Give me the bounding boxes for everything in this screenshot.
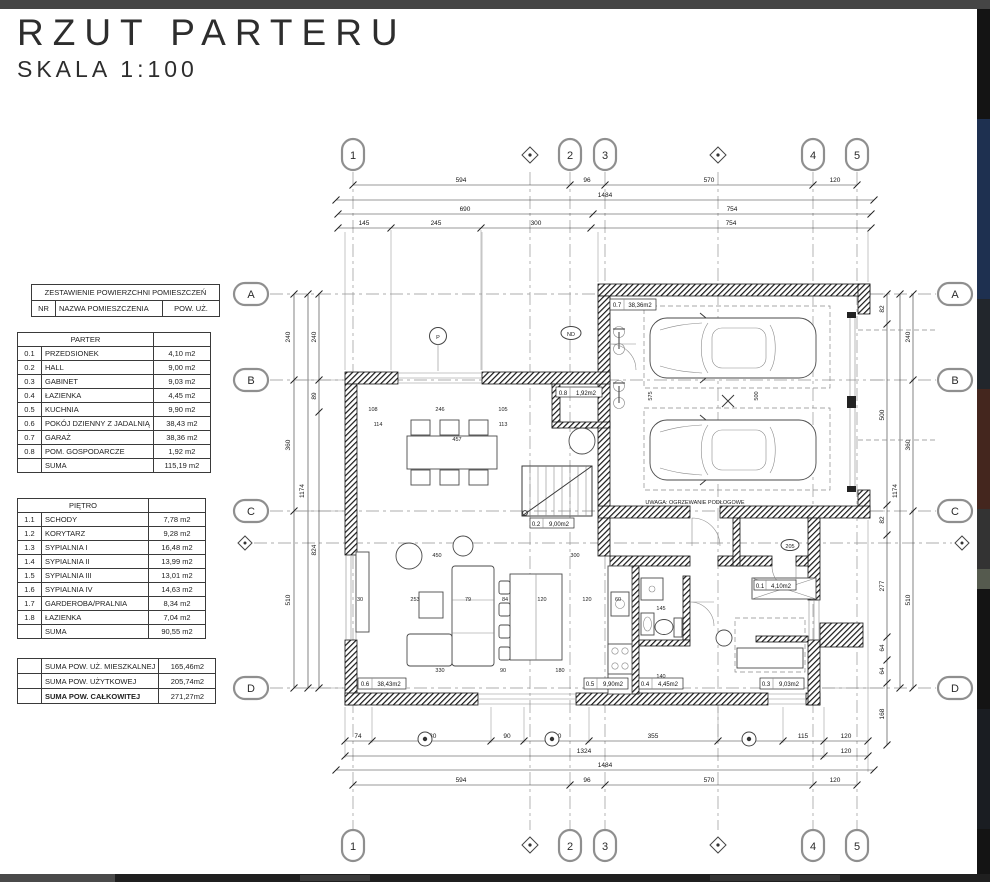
coffee-table [419,592,443,618]
dim-label: 1484 [598,762,613,769]
dim-label: 1174 [892,484,899,498]
room-area: 4,10m2 [771,584,792,590]
kitchen-counter [608,566,632,694]
dim-label: 64 [879,644,886,652]
dim-label: 74 [354,733,362,740]
dim-label: 1484 [598,192,613,199]
room-label: 0.2 9,00m2 [530,518,574,528]
dim-label: 570 [704,177,715,184]
armchair [396,543,422,569]
toilet [655,620,673,635]
dim-label: 360 [905,439,912,450]
taskbar-sliver [0,874,990,882]
grid-row-label: D [951,683,959,695]
nd-marker-label: ND [567,332,575,338]
grid-row-label: C [951,506,959,518]
dim-label: 108 [368,407,377,413]
garage-door-openings [847,312,938,492]
floor-heating-note: UWAGA: OGRZEWANIE PODŁOGOWE [645,500,745,506]
dim-label: 300 [531,220,542,227]
grid-row-label: A [951,289,959,301]
background-window-sliver [977,9,990,875]
shower [641,578,663,600]
dim-label: 1174 [299,484,306,498]
grid-col-label: 3 [602,841,608,853]
room-number: 0.2 [532,522,541,528]
dim-label: 240 [905,331,912,342]
dim-label: 79 [465,597,471,603]
dim-label: 120 [830,177,841,184]
dim-label: 105 [498,407,507,413]
dim-label: 120 [841,733,852,740]
grid-row-label: D [247,683,255,695]
dim-label: 120 [841,748,852,755]
grid-row-label: C [247,506,255,518]
dim-label: 120 [537,597,546,603]
dim-label: 168 [879,708,886,719]
dim-label: 754 [727,206,738,213]
armchair [453,536,473,556]
desk-chair [716,630,732,646]
room-label: 0.8 1,92m2 [556,387,602,397]
dim-label: 96 [583,177,591,184]
room-number: 0.7 [613,303,622,309]
dim-label: 457 [452,437,461,443]
dim-label: 114 [374,422,383,428]
car-2 [650,415,816,485]
car-1 [650,313,816,383]
sofa [452,566,494,666]
room-label: 0.6 38,43m2 [358,678,406,689]
dim-label: 115 [798,733,809,740]
door-tag-label: 205 [785,544,794,550]
dim-label: 570 [704,777,715,784]
stairs [522,428,595,516]
kitchen-sink [611,592,629,616]
toilet-tank [674,618,682,637]
dim-label: 253 [410,597,419,603]
room-label: 0.5 9,90m2 [584,678,628,689]
dim-label: 510 [285,594,292,605]
dim-label: 82 [879,516,886,524]
bathroom-sink [641,613,654,635]
room-label: 0.4 4,45m2 [639,678,683,689]
dim-label: 90 [503,733,511,740]
dim-label: 824 [311,544,318,555]
grid-col-label: 1 [350,150,356,162]
desk [737,648,803,668]
room-number: 0.5 [586,682,595,688]
grid-row-label: B [247,375,254,387]
dim-label: 594 [456,777,467,784]
dim-label: 60 [615,597,621,603]
room-area: 9,00m2 [549,522,570,528]
dim-label: 120 [582,597,591,603]
dim-label: 754 [726,220,737,227]
dim-label: 30 [357,597,363,603]
room-area: 9,90m2 [603,682,624,688]
room-label: 0.1 4,10m2 [754,580,796,590]
dim-label: 64 [879,667,886,675]
dim-label: 1324 [577,748,592,755]
dim-label: 690 [460,206,471,213]
dim-label: 500 [754,391,760,400]
dim-label: 84 [502,597,508,603]
room-area: 38,36m2 [628,303,652,309]
page: RZUT PARTERU SKALA 1:100 ZESTAWIENIE POW… [0,0,990,882]
grid-col-label: 2 [567,841,573,853]
garage-center-marker [722,395,734,407]
dim-label: 113 [499,422,508,428]
grid-col-label: 1 [350,841,356,853]
room-number: 0.3 [762,682,771,688]
dim-label: 120 [830,777,841,784]
stove [608,644,632,674]
dim-label: 594 [456,177,467,184]
grid-col-label: 4 [810,841,816,853]
dim-label: 575 [648,391,654,400]
grid-col-label: 2 [567,150,573,162]
garage-cars [644,306,830,490]
dim-label: 300 [570,553,579,559]
grid-col-label: 5 [854,150,860,162]
dim-label: 355 [648,733,659,740]
dim-label: 500 [879,409,886,420]
grid-row-label: B [951,375,958,387]
room-number: 0.8 [559,391,568,397]
floor-plan-drawing: 594 96 570 120 1484 690 754 145 245 300 … [0,0,990,882]
room-label: 0.7 38,36m2 [610,299,656,310]
grid-col-label: 4 [810,150,816,162]
room-area: 4,45m2 [658,682,679,688]
room-area: 1,92m2 [576,391,597,397]
dims-left: 240 360 510 1174 240 89 824 [285,291,323,692]
room-area: 38,43m2 [377,682,401,688]
dim-label: 145 [359,220,370,227]
grid-col-label: 5 [854,841,860,853]
dim-label: 145 [656,606,665,612]
dim-label: 89 [311,392,318,400]
room-area: 9,03m2 [779,682,800,688]
room-label: 0.3 9,03m2 [760,678,804,689]
room-number: 0.1 [756,584,765,590]
tv-cabinet [356,552,369,632]
dim-label: 96 [583,777,591,784]
grid-row-label: A [247,289,255,301]
dim-label: 180 [555,668,564,674]
dim-label: 90 [500,668,506,674]
p-marker-label: P [436,335,440,341]
dim-label: 330 [435,668,444,674]
dim-label: 240 [285,331,292,342]
dim-label: 277 [879,580,886,591]
grid-col-label: 3 [602,150,608,162]
dim-label: 510 [905,594,912,605]
sofa-chaise [407,634,452,666]
dim-label: 82 [879,305,886,313]
dim-label: 245 [431,220,442,227]
dims-right: 82 500 82 277 64 64 168 1174 240 360 510 [879,291,917,749]
dim-label: 360 [285,439,292,450]
dim-label: 240 [311,331,318,342]
dim-label: 450 [432,553,441,559]
room-number: 0.6 [361,682,370,688]
room-number: 0.4 [641,682,650,688]
dim-label: 246 [435,407,444,413]
dimension-extension-lines [296,230,885,772]
